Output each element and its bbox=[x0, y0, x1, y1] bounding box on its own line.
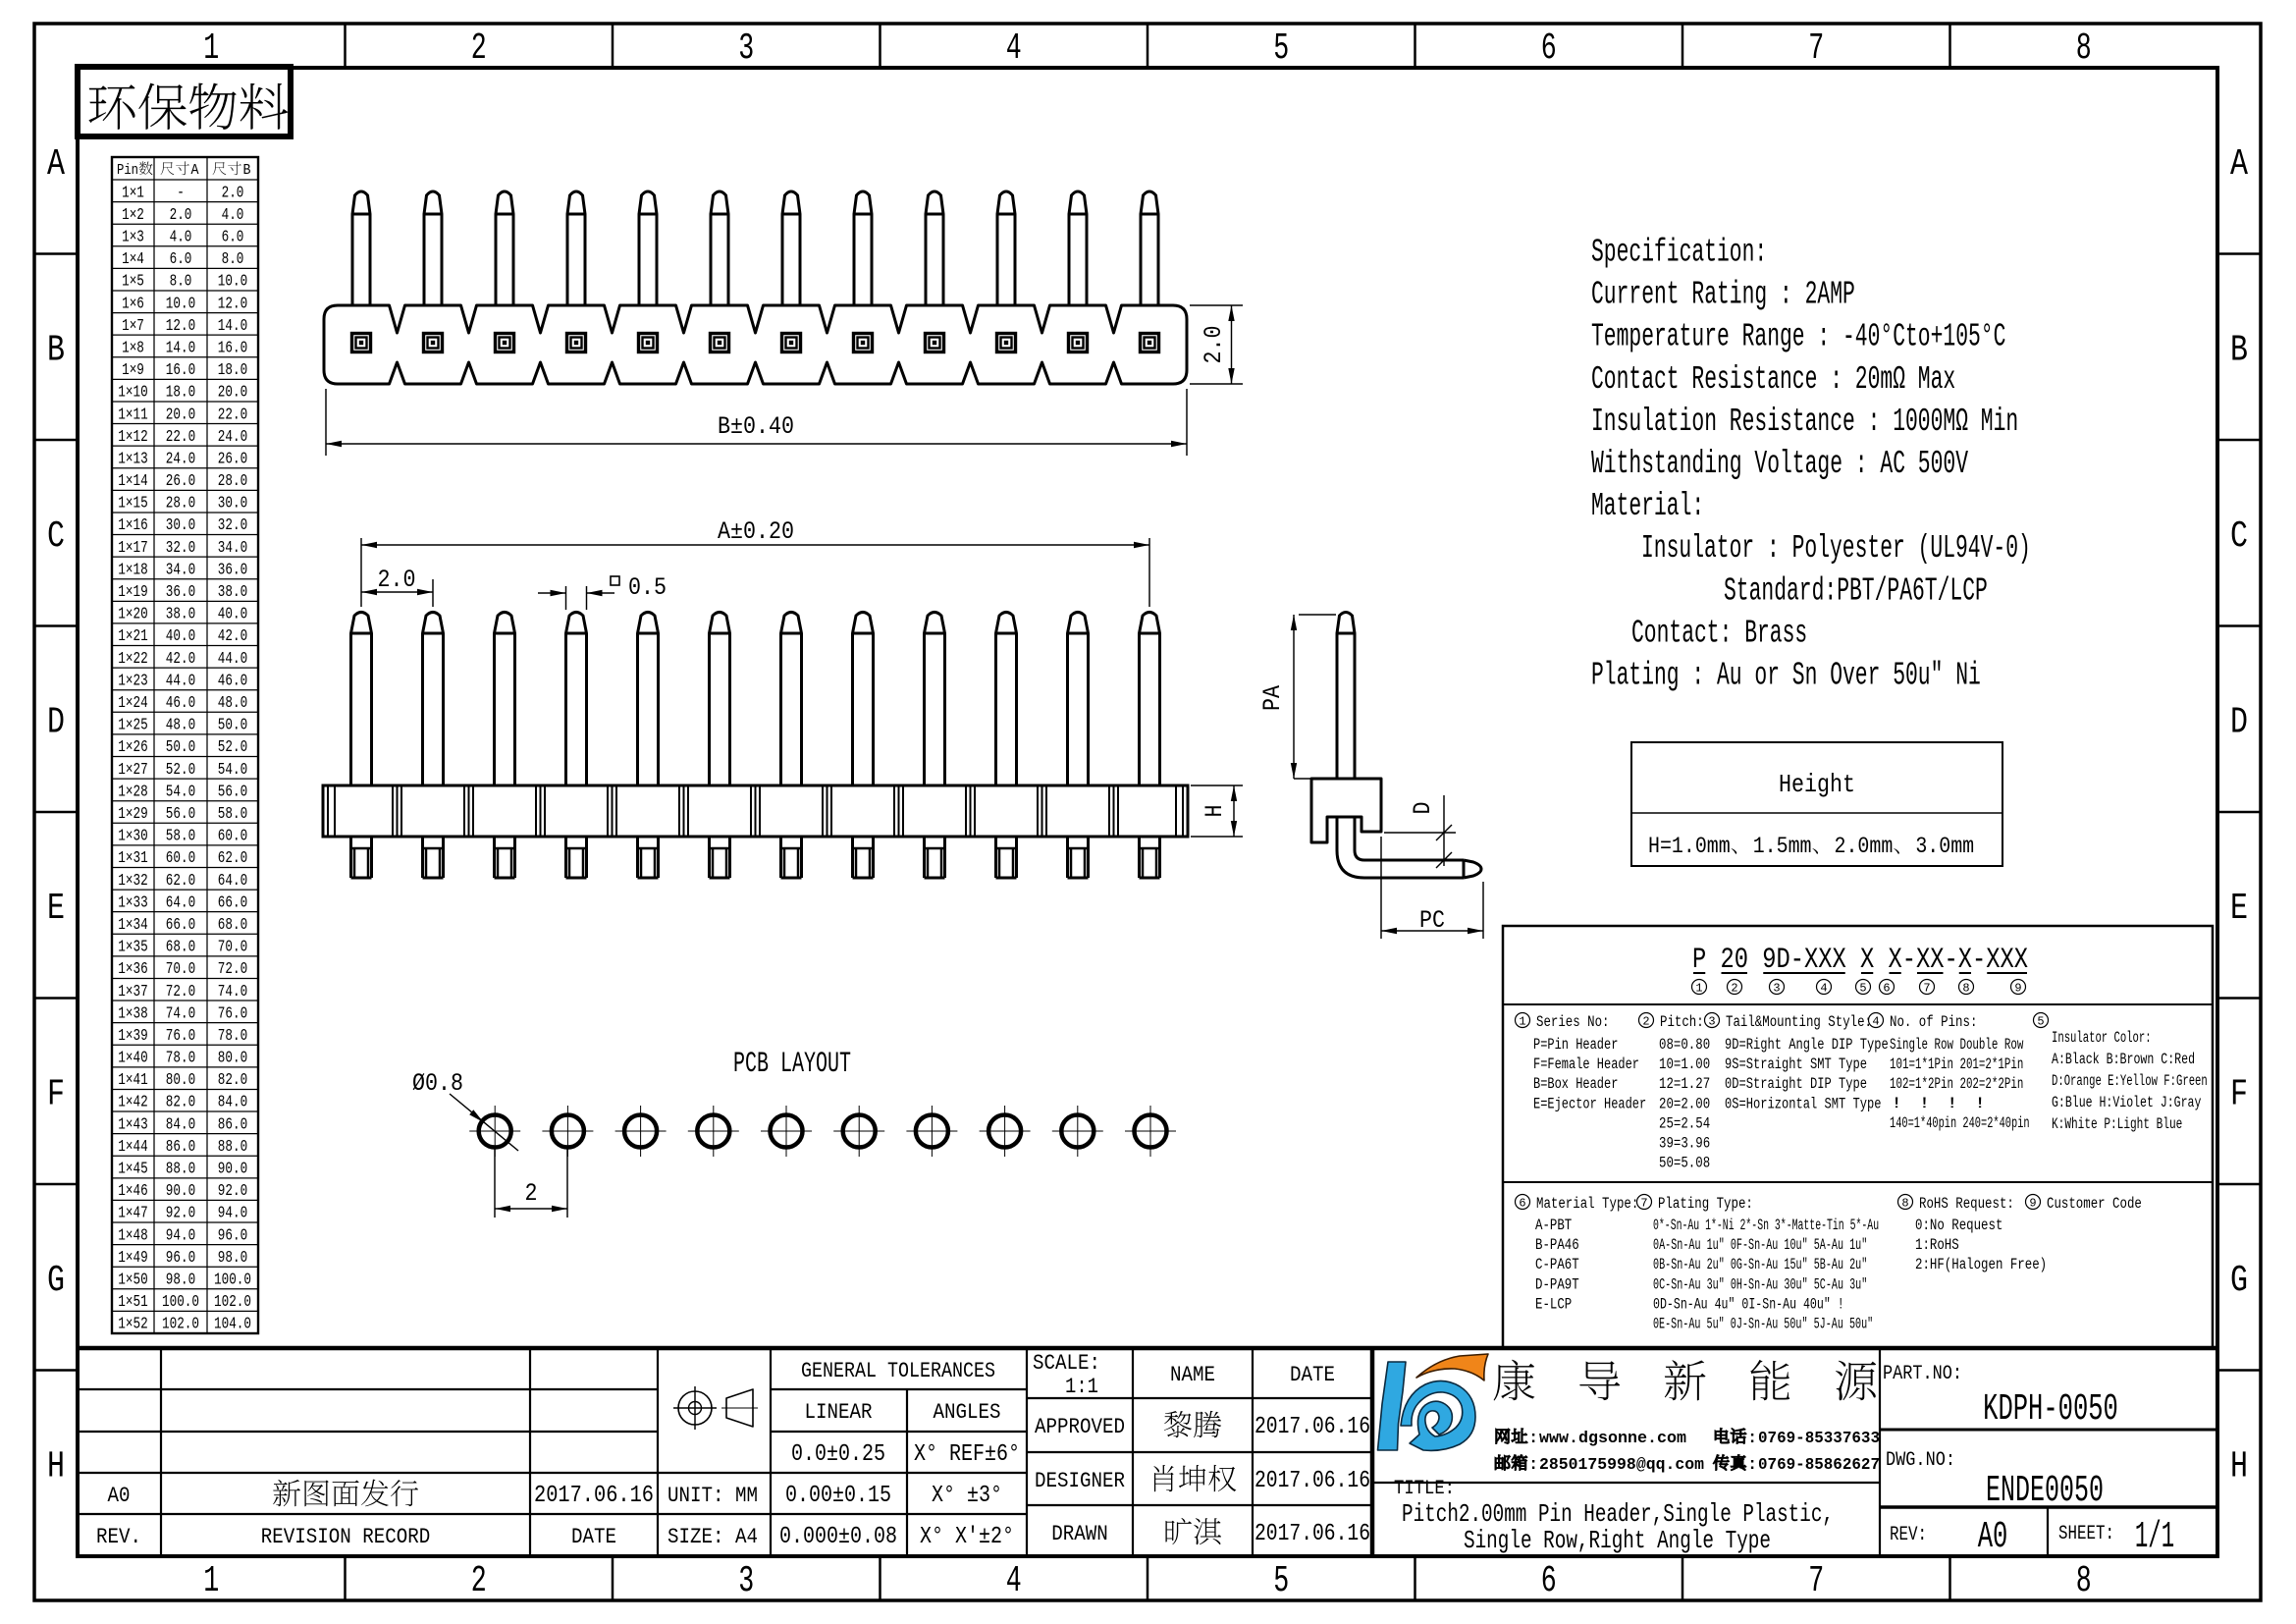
svg-text:50=5.08: 50=5.08 bbox=[1659, 1155, 1710, 1172]
svg-text:P=Pin Header: P=Pin Header bbox=[1533, 1036, 1618, 1054]
svg-text:64.0: 64.0 bbox=[218, 872, 247, 891]
svg-text:1×37: 1×37 bbox=[118, 983, 147, 1001]
svg-text:3: 3 bbox=[1773, 981, 1780, 995]
svg-text:18.0: 18.0 bbox=[218, 361, 247, 380]
svg-text:C-PA6T: C-PA6T bbox=[1535, 1256, 1579, 1273]
svg-text:101=1*1Pin 201=2*1Pin: 101=1*1Pin 201=2*1Pin bbox=[1890, 1056, 2023, 1073]
svg-text:1×8: 1×8 bbox=[122, 339, 144, 357]
svg-text:14.0: 14.0 bbox=[218, 317, 247, 336]
svg-text:0769-85862627: 0769-85862627 bbox=[1758, 1456, 1880, 1475]
svg-text:RoHS Request:: RoHS Request: bbox=[1919, 1195, 2014, 1213]
svg-text:32.0: 32.0 bbox=[166, 539, 195, 558]
svg-text:1×42: 1×42 bbox=[118, 1094, 147, 1112]
svg-text:28.0: 28.0 bbox=[166, 495, 195, 514]
svg-text:84.0: 84.0 bbox=[218, 1094, 247, 1112]
svg-text:88.0: 88.0 bbox=[166, 1161, 195, 1179]
svg-text:86.0: 86.0 bbox=[218, 1115, 247, 1134]
svg-text:B: B bbox=[243, 162, 251, 179]
svg-text:D: D bbox=[2230, 701, 2248, 743]
svg-text:42.0: 42.0 bbox=[166, 650, 195, 669]
svg-text:8: 8 bbox=[2076, 1560, 2092, 1602]
svg-text:56.0: 56.0 bbox=[166, 805, 195, 824]
svg-text:26.0: 26.0 bbox=[166, 472, 195, 491]
svg-text:Ø0.8: Ø0.8 bbox=[412, 1069, 463, 1098]
svg-text:2.0: 2.0 bbox=[1200, 326, 1228, 364]
svg-text:1×3: 1×3 bbox=[122, 228, 144, 246]
svg-text:TITLE:: TITLE: bbox=[1394, 1478, 1455, 1500]
svg-text:52.0: 52.0 bbox=[218, 738, 247, 757]
svg-text:50.0: 50.0 bbox=[218, 717, 247, 735]
svg-text:-: - bbox=[177, 184, 185, 202]
svg-text:62.0: 62.0 bbox=[166, 872, 195, 891]
svg-text:34.0: 34.0 bbox=[166, 561, 195, 579]
svg-text:1×6: 1×6 bbox=[122, 295, 144, 313]
svg-text:14.0: 14.0 bbox=[166, 339, 195, 357]
svg-text:1×44: 1×44 bbox=[118, 1138, 147, 1157]
svg-text:9: 9 bbox=[2029, 1196, 2036, 1210]
svg-text:94.0: 94.0 bbox=[218, 1205, 247, 1223]
svg-text:Insulator : Polyester (UL94V-0: Insulator : Polyester (UL94V-0) bbox=[1641, 530, 2031, 567]
svg-text:Height: Height bbox=[1779, 770, 1855, 799]
svg-text:08=0.80: 08=0.80 bbox=[1659, 1036, 1710, 1054]
svg-text:40.0: 40.0 bbox=[218, 606, 247, 624]
svg-text:58.0: 58.0 bbox=[218, 805, 247, 824]
svg-text:9: 9 bbox=[2014, 981, 2021, 995]
svg-text:86.0: 86.0 bbox=[166, 1138, 195, 1157]
svg-text:1×22: 1×22 bbox=[118, 650, 147, 669]
svg-text:3: 3 bbox=[738, 27, 754, 70]
svg-text:Contact Resistance : 20mΩ Max: Contact Resistance : 20mΩ Max bbox=[1591, 361, 1955, 398]
svg-text:1×49: 1×49 bbox=[118, 1249, 147, 1268]
svg-text:1×30: 1×30 bbox=[118, 828, 147, 846]
svg-text:1×2: 1×2 bbox=[122, 206, 144, 225]
svg-text:2: 2 bbox=[471, 27, 487, 70]
svg-text:Specification:: Specification: bbox=[1591, 235, 1767, 271]
svg-text:Series No:: Series No: bbox=[1536, 1013, 1610, 1031]
svg-text:PCB LAYOUT: PCB LAYOUT bbox=[733, 1048, 851, 1081]
svg-text:0769-85337633: 0769-85337633 bbox=[1758, 1430, 1880, 1448]
svg-text:2.0: 2.0 bbox=[222, 184, 244, 202]
svg-text:PA: PA bbox=[1258, 685, 1287, 711]
svg-text:72.0: 72.0 bbox=[166, 983, 195, 1001]
svg-text:1×35: 1×35 bbox=[118, 939, 147, 957]
svg-text:2017.06.16: 2017.06.16 bbox=[534, 1483, 654, 1509]
svg-text:25=2.54: 25=2.54 bbox=[1659, 1114, 1710, 1132]
svg-text:5: 5 bbox=[1273, 1560, 1289, 1602]
svg-text:F=Female Header: F=Female Header bbox=[1533, 1056, 1639, 1073]
svg-text:0.5: 0.5 bbox=[628, 573, 667, 602]
svg-text:1×36: 1×36 bbox=[118, 960, 147, 979]
svg-text:76.0: 76.0 bbox=[166, 1027, 195, 1046]
svg-text:D: D bbox=[1409, 802, 1437, 815]
svg-text:1: 1 bbox=[1519, 1014, 1525, 1028]
svg-text:A: A bbox=[191, 162, 199, 179]
svg-text:6.0: 6.0 bbox=[170, 250, 192, 269]
svg-text:96.0: 96.0 bbox=[218, 1226, 247, 1245]
svg-text:78.0: 78.0 bbox=[166, 1050, 195, 1068]
svg-text:A: A bbox=[2230, 143, 2248, 186]
svg-text:1×28: 1×28 bbox=[118, 783, 147, 801]
svg-text:PC: PC bbox=[1419, 906, 1445, 935]
svg-text:K:White P:Light Blue: K:White P:Light Blue bbox=[2052, 1115, 2182, 1133]
svg-text:12.0: 12.0 bbox=[166, 317, 195, 336]
svg-text:0.00±0.15: 0.00±0.15 bbox=[785, 1483, 891, 1509]
svg-text:REV:: REV: bbox=[1890, 1524, 1927, 1546]
svg-text:0E-Sn-Au 5u" 0J-Sn-Au 50u" 5J: 0E-Sn-Au 5u" 0J-Sn-Au 50u" 5J-Au 50u" bbox=[1653, 1316, 1873, 1333]
svg-text:1×41: 1×41 bbox=[118, 1071, 147, 1090]
svg-text:10=1.00: 10=1.00 bbox=[1659, 1056, 1710, 1073]
svg-text:16.0: 16.0 bbox=[218, 339, 247, 357]
svg-text:38.0: 38.0 bbox=[218, 583, 247, 602]
svg-text:1×15: 1×15 bbox=[118, 495, 147, 514]
svg-text:1×13: 1×13 bbox=[118, 450, 147, 468]
svg-text:78.0: 78.0 bbox=[218, 1027, 247, 1046]
svg-text:A0: A0 bbox=[1978, 1516, 2008, 1558]
svg-text:64.0: 64.0 bbox=[166, 893, 195, 912]
svg-text:www.dgsonne.com: www.dgsonne.com bbox=[1539, 1430, 1686, 1448]
svg-text:B-PA46: B-PA46 bbox=[1535, 1236, 1579, 1254]
svg-text:98.0: 98.0 bbox=[218, 1249, 247, 1268]
svg-text:66.0: 66.0 bbox=[218, 893, 247, 912]
svg-text:140=1*40pin 240=2*40pin: 140=1*40pin 240=2*40pin bbox=[1890, 1114, 2030, 1132]
svg-text:54.0: 54.0 bbox=[218, 761, 247, 780]
svg-text:1×27: 1×27 bbox=[118, 761, 147, 780]
svg-text:5: 5 bbox=[2037, 1014, 2044, 1028]
svg-text:8: 8 bbox=[1962, 981, 1969, 995]
svg-text:D:Orange E:Yellow F:Green: D:Orange E:Yellow F:Green bbox=[2052, 1072, 2208, 1090]
svg-text:40.0: 40.0 bbox=[166, 627, 195, 646]
svg-text:0D-Sn-Au 4u" 0I-Sn-Au 40u": 0D-Sn-Au 4u" 0I-Sn-Au 40u" ! bbox=[1653, 1295, 1844, 1313]
svg-text:48.0: 48.0 bbox=[166, 717, 195, 735]
svg-text:1:RoHS: 1:RoHS bbox=[1915, 1236, 1959, 1254]
svg-text:P 20 9D-XXX X X-XX-X-XXX: P 20 9D-XXX X X-XX-X-XXX bbox=[1692, 944, 2028, 977]
svg-text:100.0: 100.0 bbox=[162, 1293, 199, 1312]
svg-text:DATE: DATE bbox=[571, 1525, 616, 1549]
svg-text:7: 7 bbox=[1808, 1560, 1824, 1602]
svg-text::: : bbox=[1747, 1456, 1757, 1475]
svg-text:82.0: 82.0 bbox=[166, 1094, 195, 1112]
svg-text:3: 3 bbox=[1708, 1014, 1715, 1028]
svg-text:66.0: 66.0 bbox=[166, 916, 195, 935]
svg-text:1×50: 1×50 bbox=[118, 1272, 147, 1290]
svg-text:E-LCP: E-LCP bbox=[1535, 1295, 1572, 1313]
svg-text:B=Box Header: B=Box Header bbox=[1533, 1075, 1618, 1093]
svg-text:H: H bbox=[2230, 1445, 2248, 1488]
svg-text:0C-Sn-Au 3u" 0H-Sn-Au 30u" 5C: 0C-Sn-Au 3u" 0H-Sn-Au 30u" 5C-Au 3u" bbox=[1653, 1275, 1867, 1293]
svg-text:52.0: 52.0 bbox=[166, 761, 195, 780]
svg-text:76.0: 76.0 bbox=[218, 1004, 247, 1023]
svg-text:Pitch2.00mm Pin Header,Single: Pitch2.00mm Pin Header,Single Plastic, bbox=[1402, 1499, 1834, 1529]
svg-text:2017.06.16: 2017.06.16 bbox=[1255, 1521, 1370, 1547]
svg-text:GENERAL TOLERANCES: GENERAL TOLERANCES bbox=[801, 1359, 995, 1383]
svg-text:G:Blue H:Violet J:Gray: G:Blue H:Violet J:Gray bbox=[2052, 1094, 2201, 1111]
svg-text:Single Row,Right Angle Type: Single Row,Right Angle Type bbox=[1464, 1526, 1771, 1555]
svg-text:6: 6 bbox=[1541, 27, 1557, 70]
svg-text:1×20: 1×20 bbox=[118, 606, 147, 624]
svg-text:Withstanding Voltage : AC 500V: Withstanding Voltage : AC 500V bbox=[1591, 446, 1968, 482]
svg-text:50.0: 50.0 bbox=[166, 738, 195, 757]
svg-text:D: D bbox=[47, 701, 65, 743]
svg-text:C: C bbox=[47, 515, 65, 558]
svg-text:70.0: 70.0 bbox=[166, 960, 195, 979]
svg-text:4: 4 bbox=[1006, 27, 1022, 70]
svg-text:6: 6 bbox=[1541, 1560, 1557, 1602]
svg-text:70.0: 70.0 bbox=[218, 939, 247, 957]
svg-text:6.0: 6.0 bbox=[222, 228, 244, 246]
svg-text:44.0: 44.0 bbox=[166, 672, 195, 690]
svg-text:1×32: 1×32 bbox=[118, 872, 147, 891]
svg-text:100.0: 100.0 bbox=[214, 1272, 251, 1290]
svg-text:10.0: 10.0 bbox=[166, 295, 195, 313]
svg-text:18.0: 18.0 bbox=[166, 384, 195, 403]
svg-text:92.0: 92.0 bbox=[166, 1205, 195, 1223]
svg-text:20=2.00: 20=2.00 bbox=[1659, 1095, 1710, 1112]
svg-text:48.0: 48.0 bbox=[218, 694, 247, 713]
svg-text:4: 4 bbox=[1820, 981, 1827, 995]
svg-text:34.0: 34.0 bbox=[218, 539, 247, 558]
svg-text:ANGLES: ANGLES bbox=[934, 1400, 1001, 1425]
svg-text:LINEAR: LINEAR bbox=[805, 1400, 873, 1425]
svg-text:1×39: 1×39 bbox=[118, 1027, 147, 1046]
svg-text:68.0: 68.0 bbox=[218, 916, 247, 935]
svg-text:39=3.96: 39=3.96 bbox=[1659, 1135, 1710, 1153]
svg-text:A0: A0 bbox=[108, 1484, 131, 1508]
svg-text:1×5: 1×5 bbox=[122, 273, 144, 292]
svg-text:36.0: 36.0 bbox=[166, 583, 195, 602]
svg-text:Temperature Range : -40°Cto+10: Temperature Range : -40°Cto+105°C bbox=[1591, 319, 2005, 355]
svg-text:46.0: 46.0 bbox=[166, 694, 195, 713]
svg-text::: : bbox=[1528, 1430, 1538, 1448]
svg-text:KDPH-0050: KDPH-0050 bbox=[1983, 1388, 2118, 1431]
svg-text:8: 8 bbox=[2076, 27, 2092, 70]
svg-text:22.0: 22.0 bbox=[218, 406, 247, 424]
svg-text:REVISION RECORD: REVISION RECORD bbox=[261, 1525, 431, 1549]
svg-text:SIZE: A4: SIZE: A4 bbox=[667, 1525, 758, 1549]
svg-text:1: 1 bbox=[203, 1560, 219, 1602]
svg-text:58.0: 58.0 bbox=[166, 828, 195, 846]
svg-text:44.0: 44.0 bbox=[218, 650, 247, 669]
svg-text:1×43: 1×43 bbox=[118, 1115, 147, 1134]
svg-text:X° X'±2°: X° X'±2° bbox=[920, 1524, 1014, 1550]
svg-text:A±0.20: A±0.20 bbox=[718, 517, 794, 546]
svg-text:10.0: 10.0 bbox=[218, 273, 247, 292]
svg-text:Standard:PBT/PA6T/LCP: Standard:PBT/PA6T/LCP bbox=[1724, 572, 1988, 609]
svg-text:H: H bbox=[47, 1445, 65, 1488]
svg-text:DESIGNER: DESIGNER bbox=[1035, 1469, 1125, 1493]
svg-text:2: 2 bbox=[525, 1179, 538, 1208]
svg-text:2.0: 2.0 bbox=[378, 566, 416, 594]
svg-text:1×4: 1×4 bbox=[122, 250, 144, 269]
svg-text:Tail&Mounting Style:: Tail&Mounting Style: bbox=[1726, 1013, 1872, 1031]
svg-text:No. of Pins:: No. of Pins: bbox=[1890, 1013, 1977, 1031]
svg-text:2850175998@qq.com: 2850175998@qq.com bbox=[1539, 1456, 1704, 1475]
svg-text:1×14: 1×14 bbox=[118, 472, 147, 491]
svg-text:DATE: DATE bbox=[1290, 1363, 1335, 1387]
svg-text:A:Black B:Brown C:Red: A:Black B:Brown C:Red bbox=[2052, 1051, 2195, 1068]
svg-text:REV.: REV. bbox=[96, 1525, 141, 1549]
svg-text:X° ±3°: X° ±3° bbox=[932, 1483, 1002, 1509]
svg-text:32.0: 32.0 bbox=[218, 516, 247, 535]
svg-text:42.0: 42.0 bbox=[218, 627, 247, 646]
svg-text:1×52: 1×52 bbox=[118, 1316, 147, 1334]
svg-text:DRAWN: DRAWN bbox=[1051, 1522, 1108, 1546]
svg-text:4.0: 4.0 bbox=[222, 206, 244, 225]
svg-text:! ! ! !: ! ! ! ! bbox=[1890, 1095, 1987, 1112]
svg-text:H: H bbox=[1201, 805, 1229, 818]
svg-text:1×38: 1×38 bbox=[118, 1004, 147, 1023]
svg-text:A: A bbox=[47, 143, 65, 186]
svg-text:28.0: 28.0 bbox=[218, 472, 247, 491]
svg-text:DWG.NO:: DWG.NO: bbox=[1886, 1449, 1955, 1472]
svg-text:Pin: Pin bbox=[117, 162, 138, 179]
svg-text:G: G bbox=[2230, 1260, 2248, 1302]
svg-text:0D=Straight DIP Type: 0D=Straight DIP Type bbox=[1725, 1075, 1867, 1093]
svg-text:2: 2 bbox=[471, 1560, 487, 1602]
svg-text:9S=Straight SMT Type: 9S=Straight SMT Type bbox=[1725, 1056, 1867, 1073]
svg-text:1×31: 1×31 bbox=[118, 849, 147, 868]
svg-text:1×1: 1×1 bbox=[122, 184, 144, 202]
svg-text:102=1*2Pin 202=2*2Pin: 102=1*2Pin 202=2*2Pin bbox=[1890, 1075, 2023, 1093]
svg-text:H=1.0mm: H=1.0mm bbox=[1648, 834, 1731, 859]
svg-text:102.0: 102.0 bbox=[162, 1316, 199, 1334]
svg-text:38.0: 38.0 bbox=[166, 606, 195, 624]
svg-text:SHEET:: SHEET: bbox=[2058, 1523, 2114, 1545]
svg-text:2017.06.16: 2017.06.16 bbox=[1255, 1468, 1370, 1494]
svg-text:5: 5 bbox=[1273, 27, 1289, 70]
svg-text:102.0: 102.0 bbox=[214, 1293, 251, 1312]
svg-text:E: E bbox=[47, 888, 65, 930]
svg-text:30.0: 30.0 bbox=[218, 495, 247, 514]
svg-text:7: 7 bbox=[1640, 1196, 1647, 1210]
svg-text:SCALE:: SCALE: bbox=[1033, 1351, 1100, 1376]
svg-text:1:1: 1:1 bbox=[1065, 1375, 1098, 1399]
svg-text:74.0: 74.0 bbox=[218, 983, 247, 1001]
svg-text:8.0: 8.0 bbox=[222, 250, 244, 269]
svg-text:1×48: 1×48 bbox=[118, 1226, 147, 1245]
svg-text:1: 1 bbox=[1695, 981, 1702, 995]
svg-text:4: 4 bbox=[1006, 1560, 1022, 1602]
svg-text:3: 3 bbox=[738, 1560, 754, 1602]
svg-text:12.0: 12.0 bbox=[218, 295, 247, 313]
svg-text:Material:: Material: bbox=[1591, 488, 1704, 524]
svg-text:24.0: 24.0 bbox=[166, 450, 195, 468]
svg-text:60.0: 60.0 bbox=[218, 828, 247, 846]
svg-text:8: 8 bbox=[1901, 1196, 1908, 1210]
svg-text:96.0: 96.0 bbox=[166, 1249, 195, 1268]
svg-text:12=1.27: 12=1.27 bbox=[1659, 1075, 1710, 1093]
svg-text:4: 4 bbox=[1872, 1014, 1879, 1028]
svg-text::: : bbox=[1747, 1430, 1757, 1448]
svg-text:1×16: 1×16 bbox=[118, 516, 147, 535]
svg-text:7: 7 bbox=[1808, 27, 1824, 70]
svg-text:20.0: 20.0 bbox=[218, 384, 247, 403]
svg-text:Insulation Resistance : 1000MΩ: Insulation Resistance : 1000MΩ Min bbox=[1591, 404, 2018, 440]
svg-text:26.0: 26.0 bbox=[218, 450, 247, 468]
svg-text:80.0: 80.0 bbox=[218, 1050, 247, 1068]
svg-text:60.0: 60.0 bbox=[166, 849, 195, 868]
svg-text:G: G bbox=[47, 1260, 65, 1302]
svg-text:8.0: 8.0 bbox=[170, 273, 192, 292]
svg-text:80.0: 80.0 bbox=[166, 1071, 195, 1090]
svg-text:98.0: 98.0 bbox=[166, 1272, 195, 1290]
svg-text:1×40: 1×40 bbox=[118, 1050, 147, 1068]
svg-text:104.0: 104.0 bbox=[214, 1316, 251, 1334]
svg-text:PART.NO:: PART.NO: bbox=[1883, 1363, 1962, 1385]
svg-text:30.0: 30.0 bbox=[166, 516, 195, 535]
svg-text:1×24: 1×24 bbox=[118, 694, 147, 713]
svg-text:1×19: 1×19 bbox=[118, 583, 147, 602]
svg-text:1×51: 1×51 bbox=[118, 1293, 147, 1312]
svg-text:2017.06.16: 2017.06.16 bbox=[1255, 1414, 1370, 1440]
svg-text:1×45: 1×45 bbox=[118, 1161, 147, 1179]
svg-text:Pitch:: Pitch: bbox=[1660, 1013, 1704, 1031]
svg-text:68.0: 68.0 bbox=[166, 939, 195, 957]
svg-text:92.0: 92.0 bbox=[218, 1182, 247, 1201]
svg-text:B: B bbox=[2230, 329, 2248, 371]
svg-text:9D=Right Angle DIP Type: 9D=Right Angle DIP Type bbox=[1725, 1036, 1889, 1054]
svg-text:1.5mm: 1.5mm bbox=[1753, 834, 1812, 859]
svg-text:1×21: 1×21 bbox=[118, 627, 147, 646]
svg-text:Plating Type:: Plating Type: bbox=[1658, 1195, 1753, 1213]
svg-text:F: F bbox=[47, 1073, 65, 1115]
svg-text:C: C bbox=[2230, 515, 2248, 558]
svg-text:94.0: 94.0 bbox=[166, 1226, 195, 1245]
svg-text:Material Type:: Material Type: bbox=[1536, 1195, 1638, 1213]
svg-text:2.0mm: 2.0mm bbox=[1835, 834, 1894, 859]
svg-text:1: 1 bbox=[203, 27, 219, 70]
svg-text:1×34: 1×34 bbox=[118, 916, 147, 935]
svg-text:E=Ejector Header: E=Ejector Header bbox=[1533, 1095, 1646, 1112]
svg-text:1×25: 1×25 bbox=[118, 717, 147, 735]
svg-text:24.0: 24.0 bbox=[218, 428, 247, 447]
svg-text:36.0: 36.0 bbox=[218, 561, 247, 579]
svg-text::: : bbox=[1528, 1456, 1538, 1475]
svg-text:0:No Request: 0:No Request bbox=[1915, 1217, 2002, 1234]
svg-text:74.0: 74.0 bbox=[166, 1004, 195, 1023]
svg-text:1×11: 1×11 bbox=[118, 406, 147, 424]
svg-text:1×10: 1×10 bbox=[118, 384, 147, 403]
svg-text:6: 6 bbox=[1883, 981, 1890, 995]
svg-text:1×26: 1×26 bbox=[118, 738, 147, 757]
svg-text:1×9: 1×9 bbox=[122, 361, 144, 380]
svg-text:4.0: 4.0 bbox=[170, 228, 192, 246]
svg-text:2.0: 2.0 bbox=[170, 206, 192, 225]
svg-text:1×17: 1×17 bbox=[118, 539, 147, 558]
svg-text:84.0: 84.0 bbox=[166, 1115, 195, 1134]
svg-text:20.0: 20.0 bbox=[166, 406, 195, 424]
svg-text:2:HF(Halogen Free): 2:HF(Halogen Free) bbox=[1915, 1256, 2047, 1273]
svg-text:0*-Sn-Au 1*-Ni 2*-Sn 3*-Matte-: 0*-Sn-Au 1*-Ni 2*-Sn 3*-Matte-Tin 5*-Au bbox=[1653, 1217, 1879, 1234]
svg-text:6: 6 bbox=[1519, 1196, 1525, 1210]
svg-text:0.0±0.25: 0.0±0.25 bbox=[791, 1441, 885, 1468]
svg-text:Single Row Double Row: Single Row Double Row bbox=[1890, 1036, 2024, 1054]
svg-text:NAME: NAME bbox=[1170, 1363, 1215, 1387]
svg-text:62.0: 62.0 bbox=[218, 849, 247, 868]
svg-text:Contact: Brass: Contact: Brass bbox=[1631, 615, 1807, 651]
svg-text:56.0: 56.0 bbox=[218, 783, 247, 801]
svg-text:72.0: 72.0 bbox=[218, 960, 247, 979]
svg-text:1×18: 1×18 bbox=[118, 561, 147, 579]
svg-text:88.0: 88.0 bbox=[218, 1138, 247, 1157]
svg-text:X° REF±6°: X° REF±6° bbox=[914, 1441, 1020, 1468]
svg-text:1×29: 1×29 bbox=[118, 805, 147, 824]
svg-text:Customer Code: Customer Code bbox=[2047, 1195, 2142, 1213]
svg-text:Plating : Au or Sn Over 50u" N: Plating : Au or Sn Over 50u" Ni bbox=[1591, 658, 1981, 694]
svg-text:1×12: 1×12 bbox=[118, 428, 147, 447]
svg-text:82.0: 82.0 bbox=[218, 1071, 247, 1090]
svg-text:B±0.40: B±0.40 bbox=[718, 412, 794, 441]
svg-text:7: 7 bbox=[1923, 981, 1930, 995]
